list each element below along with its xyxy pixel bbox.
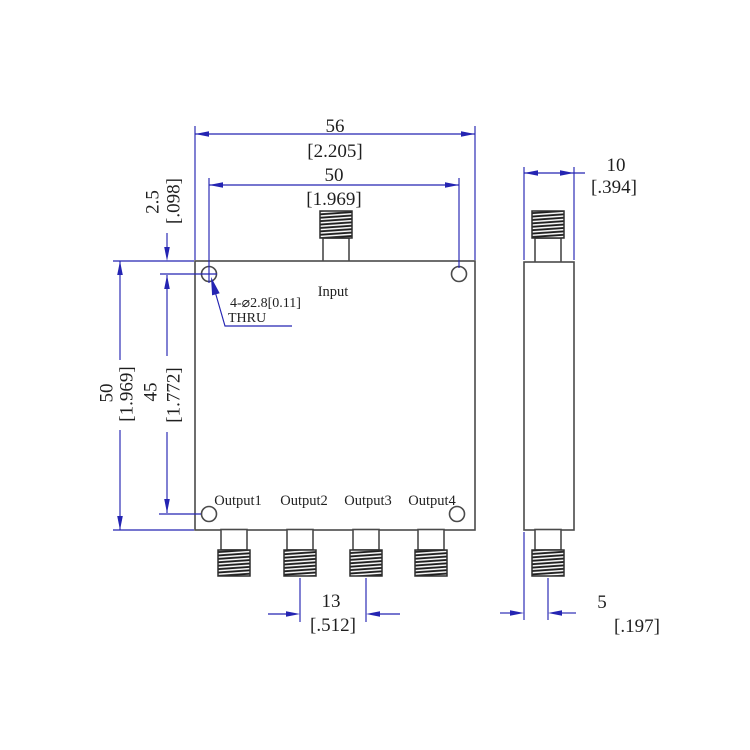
output3-label: Output3 — [344, 493, 392, 509]
dim-50-in: [1.969] — [306, 189, 361, 210]
side-bottom-connector-threads — [532, 550, 564, 576]
side-body — [524, 262, 574, 530]
output-connector-2 — [284, 530, 316, 577]
output1-threads — [218, 550, 250, 576]
side-view — [524, 211, 574, 576]
dim-v45-mm: 45 — [141, 383, 162, 402]
dim-50-mm: 50 — [325, 165, 344, 186]
dim-v45-in: [1.772] — [164, 367, 185, 422]
output-connector-3 — [350, 530, 382, 577]
dim-5-mm: 5 — [597, 592, 607, 613]
dim-2p5-mm: 2.5 — [143, 190, 164, 214]
output4-label: Output4 — [408, 493, 456, 509]
dimension-drawing: 56 [2.205] 50 [1.969] 2.5 [.098] 50 [1.9… — [0, 0, 750, 750]
hole-note-line2: THRU — [228, 311, 266, 326]
output4-threads — [415, 550, 447, 576]
output3-threads — [350, 550, 382, 576]
output2-label: Output2 — [280, 493, 328, 509]
dim-5-in: [.197] — [614, 616, 660, 637]
side-top-connector-threads — [532, 211, 564, 238]
output4-shank — [418, 530, 444, 551]
mount-hole-top-right — [452, 267, 467, 282]
dim-v50-in: [1.969] — [117, 366, 138, 421]
dim-v50-mm: 50 — [97, 384, 118, 403]
dim-13-in: [.512] — [310, 615, 356, 636]
output1-label: Output1 — [214, 493, 262, 509]
dim-10-mm: 10 — [607, 155, 626, 176]
input-connector-shank — [323, 238, 349, 262]
dim-56-mm: 56 — [326, 116, 345, 137]
dim-10-in: [.394] — [591, 177, 637, 198]
output1-shank — [221, 530, 247, 551]
input-label: Input — [318, 284, 349, 300]
dim-2p5-in: [.098] — [164, 178, 185, 224]
side-bottom-connector-shank — [535, 530, 561, 551]
output2-threads — [284, 550, 316, 576]
dim-56-in: [2.205] — [307, 141, 362, 162]
front-view — [195, 211, 475, 576]
output-connector-4 — [415, 530, 447, 577]
side-top-connector-shank — [535, 238, 561, 263]
input-connector-threads — [320, 211, 352, 238]
drawing-svg: 56 [2.205] 50 [1.969] 2.5 [.098] 50 [1.9… — [0, 0, 750, 750]
dim-13-mm: 13 — [322, 591, 341, 612]
output-connector-1 — [218, 530, 250, 577]
output2-shank — [287, 530, 313, 551]
hole-note-line1: 4-⌀2.8[0.11] — [230, 296, 301, 311]
output3-shank — [353, 530, 379, 551]
